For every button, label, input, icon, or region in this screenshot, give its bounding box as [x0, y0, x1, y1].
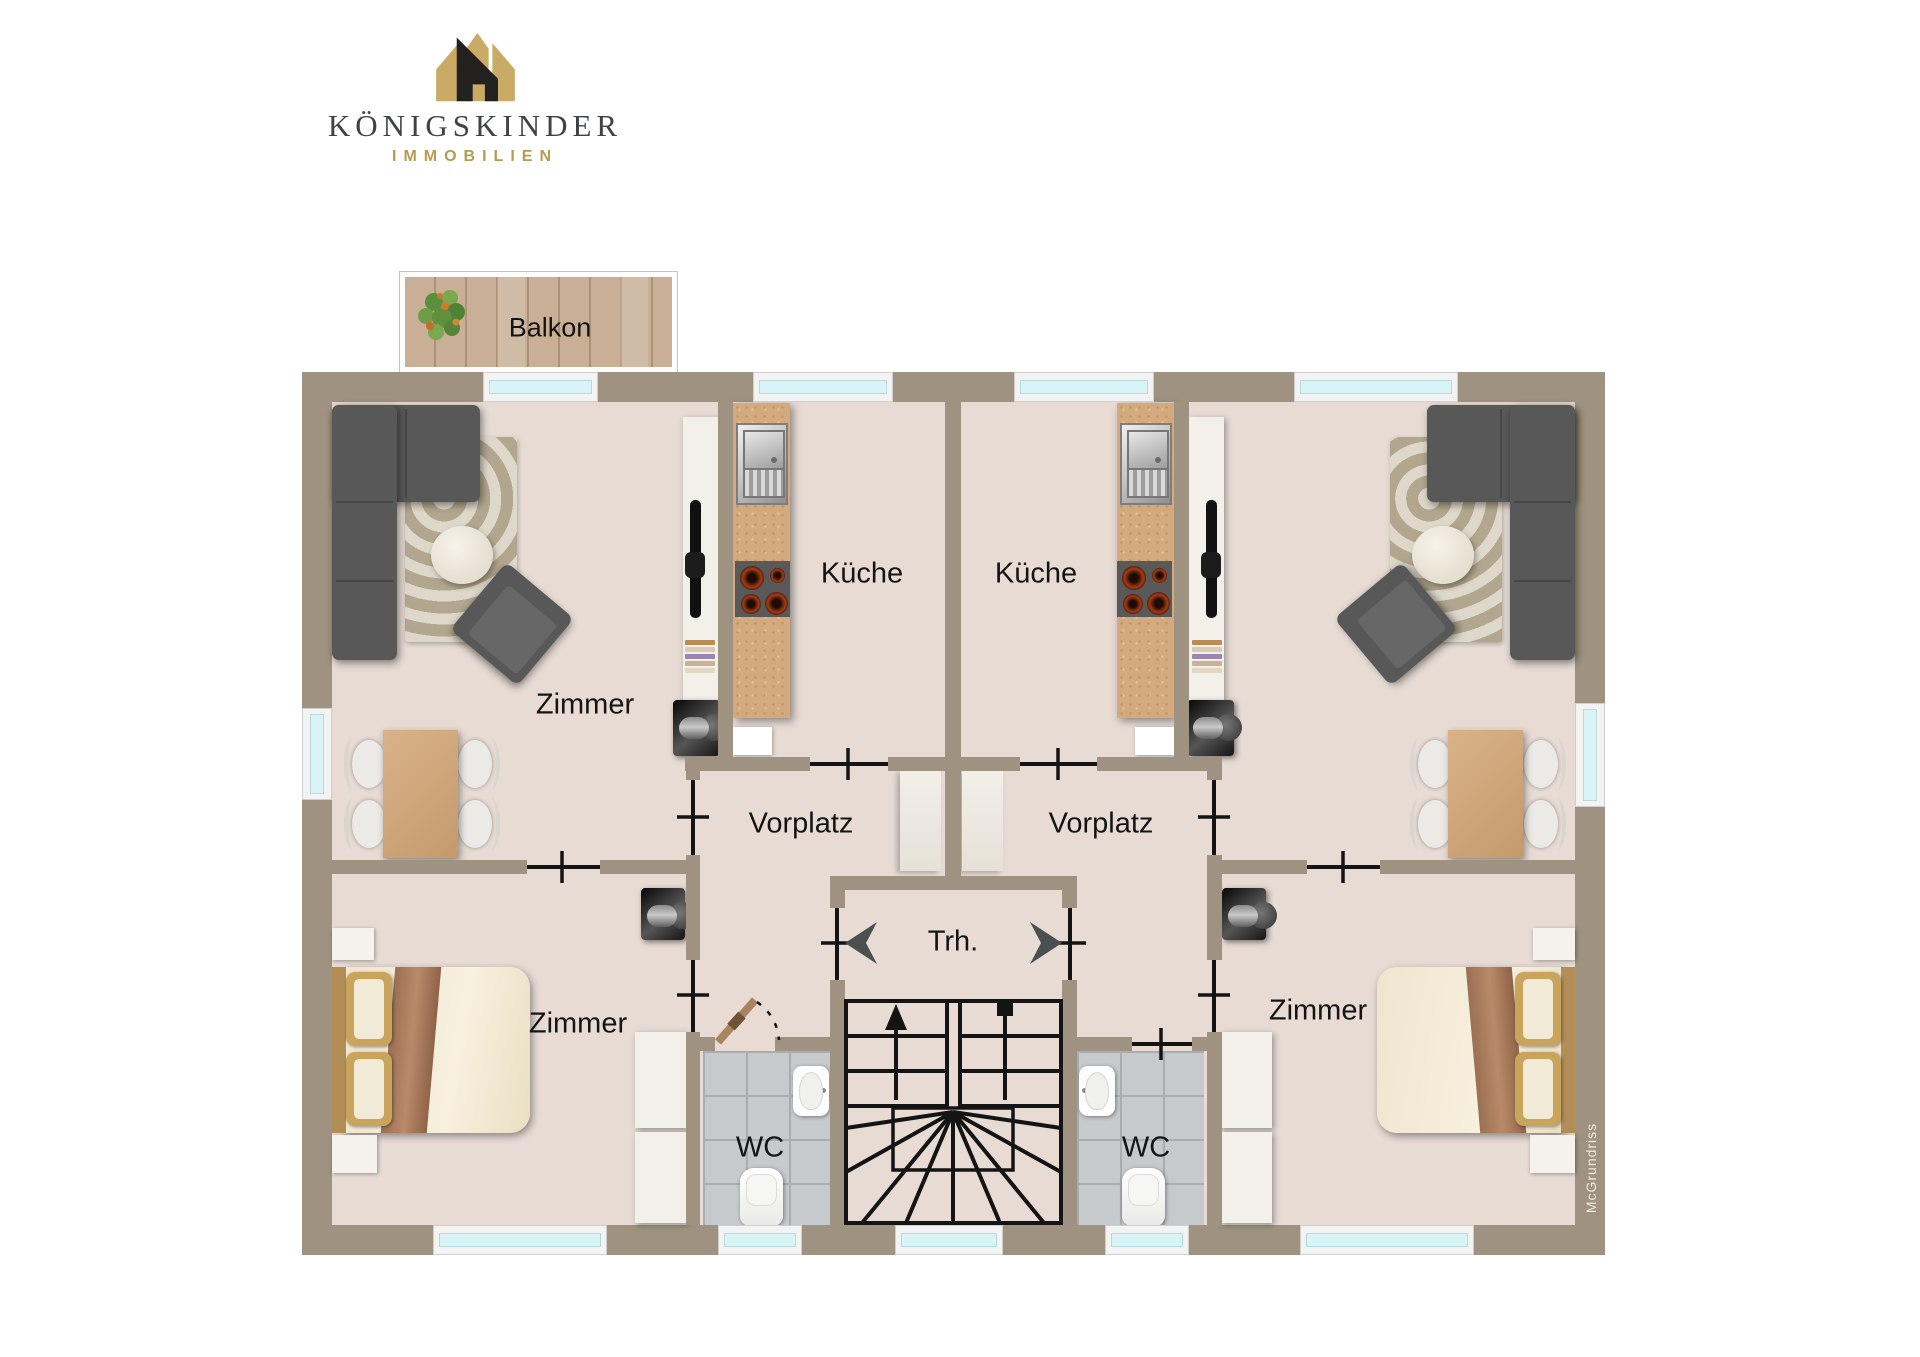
room-label-stairwell: Trh.: [928, 926, 978, 959]
book: [1192, 668, 1222, 673]
room-label-bedroom-right: Zimmer: [1269, 995, 1367, 1028]
wall: [686, 1032, 700, 1225]
window-stairwell: [895, 1225, 1003, 1255]
bed-headboard-right: [1561, 967, 1575, 1133]
window-dining-right: [1575, 703, 1605, 807]
wardrobe-left-bedroom: [635, 1132, 687, 1223]
nightstand: [332, 1135, 377, 1173]
sink-basin: [1127, 430, 1169, 472]
wall: [1207, 855, 1222, 960]
hall-wardrobe-left: [900, 771, 941, 871]
boiler-left-bedroom: [641, 888, 685, 940]
room-label-hall-left: Vorplatz: [749, 808, 854, 841]
room-label-kitchen-left: Küche: [821, 558, 903, 591]
wall: [1222, 860, 1307, 874]
brand-tagline: IMMOBILIEN: [315, 148, 635, 166]
room-label-wc-left: WC: [736, 1132, 784, 1165]
book: [685, 647, 715, 652]
wall: [1077, 1037, 1132, 1051]
bed-headboard-left: [332, 967, 346, 1133]
room-label-kitchen-right: Küche: [995, 558, 1077, 591]
wardrobe-left-bedroom: [635, 1032, 687, 1128]
dining-table-right: [1448, 730, 1523, 858]
wall: [686, 855, 700, 960]
coffee-table-left: [431, 526, 493, 584]
dining-chair: [458, 740, 492, 788]
plant-icon: [412, 284, 476, 348]
boiler-left-living: [673, 700, 720, 756]
burner: [1152, 568, 1167, 583]
wall: [1207, 1032, 1222, 1225]
watermark: McGrundriss: [1583, 1123, 1599, 1213]
bookshelf-left: [685, 640, 715, 673]
sofa-right-side-arm: [1510, 405, 1575, 660]
boiler-right-living: [1187, 700, 1234, 756]
room-label-bedroom-left: Zimmer: [529, 1008, 627, 1041]
room-label-wc-right: WC: [1122, 1132, 1170, 1165]
dining-chair: [1524, 740, 1558, 788]
window-wc-right: [1105, 1225, 1189, 1255]
kitchen-sink-right: [1120, 423, 1172, 505]
dining-chair: [352, 800, 386, 848]
washbasin-right-wc: [1079, 1066, 1115, 1116]
dining-chair: [458, 800, 492, 848]
book: [685, 661, 715, 666]
sink-basin: [743, 430, 785, 472]
nightstand: [1533, 928, 1575, 960]
window-glass: [724, 1233, 796, 1247]
dining-chair: [1418, 800, 1452, 848]
boiler-right-bedroom: [1222, 888, 1266, 940]
pillow: [1515, 1052, 1561, 1126]
window-wc-left: [718, 1225, 802, 1255]
burner: [1147, 592, 1170, 615]
sink-drainboard: [1127, 468, 1169, 498]
sofa-cushion-line: [1514, 501, 1571, 503]
sofa-left-side-arm: [332, 405, 397, 660]
wall: [1207, 757, 1222, 780]
nightstand: [1530, 1135, 1575, 1173]
sofa-cushion-line: [405, 409, 407, 498]
wardrobe-right-bedroom: [1220, 1032, 1272, 1128]
tv-icon-right: [1206, 500, 1217, 618]
dining-chair: [1418, 740, 1452, 788]
wall: [830, 980, 845, 1225]
crown-logo-icon: [428, 30, 523, 105]
sofa-cushion-line: [1500, 409, 1502, 498]
pillow: [346, 972, 392, 1046]
burner: [741, 594, 761, 614]
brand-name: KÖNIGSKINDER: [315, 108, 635, 144]
pillow: [346, 1052, 392, 1126]
window-glass: [310, 714, 324, 794]
book: [685, 668, 715, 673]
wall: [718, 402, 733, 757]
dining-table-left: [383, 730, 458, 858]
burner: [765, 592, 788, 615]
wall: [1097, 757, 1222, 771]
sofa-cushion-line: [1514, 580, 1571, 582]
sink-drainboard: [743, 468, 785, 498]
kitchen-cabinet-right: [1135, 727, 1174, 755]
window-glass: [1306, 1233, 1468, 1247]
window-living-right: [1294, 372, 1458, 402]
tap-icon: [1082, 1088, 1087, 1093]
wall: [775, 1037, 830, 1051]
hall-wardrobe-right: [962, 771, 1003, 871]
wall: [830, 876, 1077, 890]
floorplan-page: KÖNIGSKINDER IMMOBILIEN Balkon: [0, 0, 1920, 1357]
window-glass: [1300, 380, 1452, 394]
window-glass: [439, 1233, 601, 1247]
wall: [1174, 402, 1189, 757]
toilet-right-wc: [1122, 1168, 1165, 1226]
window-glass: [901, 1233, 997, 1247]
book: [685, 640, 715, 645]
window-glass: [1111, 1233, 1183, 1247]
toilet-left-wc: [740, 1168, 783, 1226]
window-glass: [489, 380, 592, 394]
wall: [700, 1037, 715, 1051]
window-glass: [759, 380, 887, 394]
book: [685, 654, 715, 659]
pillow: [1515, 972, 1561, 1046]
burner: [1122, 566, 1146, 590]
window-balcony-door: [483, 372, 598, 402]
coffee-table-right: [1412, 526, 1474, 584]
tv-icon-left: [690, 500, 701, 618]
window-dining-left: [302, 708, 332, 800]
wall: [1192, 1037, 1207, 1051]
dining-chair: [1524, 800, 1558, 848]
window-kitchen-right: [1014, 372, 1154, 402]
nightstand: [332, 928, 374, 960]
washbasin-left-wc: [793, 1066, 829, 1116]
window-glass: [1020, 380, 1148, 394]
sofa-cushion-line: [336, 580, 393, 582]
tap-icon: [821, 1088, 826, 1093]
book: [1192, 661, 1222, 666]
room-label-living-left: Zimmer: [536, 689, 634, 722]
cooktop-right: [1117, 561, 1172, 617]
book: [1192, 647, 1222, 652]
wall: [600, 860, 700, 874]
burner: [740, 566, 764, 590]
window-glass: [1583, 709, 1597, 801]
bookshelf-right: [1192, 640, 1222, 673]
room-label-hall-right: Vorplatz: [1049, 808, 1154, 841]
burner: [770, 568, 785, 583]
window-bedroom-left: [433, 1225, 607, 1255]
sofa-cushion-line: [336, 501, 393, 503]
wall: [1380, 860, 1575, 874]
window-kitchen-left: [753, 372, 893, 402]
book: [1192, 640, 1222, 645]
wall: [830, 890, 845, 908]
room-label-balcony: Balkon: [509, 313, 592, 344]
wall: [1062, 890, 1077, 908]
wardrobe-right-bedroom: [1220, 1132, 1272, 1223]
wall: [686, 757, 700, 780]
kitchen-cabinet-left: [733, 727, 772, 755]
wall: [685, 757, 810, 771]
wall: [332, 860, 527, 874]
balcony-plank: [620, 277, 648, 367]
wall: [945, 372, 961, 890]
burner: [1123, 594, 1143, 614]
kitchen-sink-left: [736, 423, 788, 505]
cooktop-left: [735, 561, 790, 617]
wall: [1062, 980, 1077, 1225]
book: [1192, 654, 1222, 659]
window-bedroom-right: [1300, 1225, 1474, 1255]
dining-chair: [352, 740, 386, 788]
